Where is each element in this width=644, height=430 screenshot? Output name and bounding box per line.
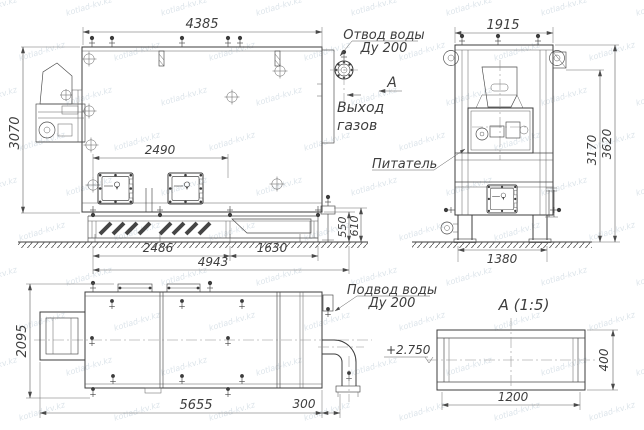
dim-2095: 2095	[15, 324, 30, 357]
callout-water-inlet: Подвод воды Ду 200	[335, 283, 437, 311]
hopper-front	[476, 67, 523, 108]
dimensions-side: 4385 3070 2490 2486 1630 4943 550 610	[8, 17, 367, 274]
callout-feeder: Питатель	[372, 149, 465, 172]
dim-1630: 1630	[257, 241, 288, 255]
feeder-box-top	[40, 312, 85, 360]
dim-400: 400	[597, 348, 611, 371]
dim-5655: 5655	[179, 398, 212, 413]
dim-3620: 3620	[600, 128, 614, 159]
side-door-1	[98, 173, 133, 204]
fuel-feeder-side	[36, 63, 85, 142]
drawing-page: { "watermark": { "text": "kotlad-kv.kz" …	[0, 0, 644, 430]
section-mark-letter: А	[386, 75, 397, 91]
callout-gas-exit: Выход газов	[337, 100, 384, 134]
drain-valve	[321, 195, 335, 242]
engineering-drawing: А	[0, 0, 644, 430]
label-gas-exit-2: газов	[337, 118, 377, 134]
dimensions-top: 2095 5655 300	[15, 284, 340, 418]
feeder-window	[468, 108, 533, 153]
label-elevation: +2.750	[386, 343, 431, 357]
top-view	[34, 281, 372, 402]
lifting-lugs	[159, 51, 280, 66]
dim-1200: 1200	[498, 390, 529, 404]
callout-water-outlet: Отвод воды Ду 200	[340, 28, 425, 56]
dim-1915: 1915	[486, 18, 519, 33]
dimensions-section-a: 1200 400	[442, 330, 618, 410]
water-inlet-elbow	[318, 340, 364, 402]
label-gas-exit-1: Выход	[337, 100, 384, 116]
front-view	[441, 34, 566, 243]
label-water-inlet-size: Ду 200	[368, 296, 416, 311]
dim-610: 610	[348, 216, 361, 237]
section-a-title: А (1:5)	[498, 296, 550, 314]
dim-4943: 4943	[198, 255, 229, 269]
base-frame	[88, 216, 318, 242]
dim-300: 300	[293, 397, 316, 411]
section-cut-mark: А	[347, 75, 402, 95]
front-door	[487, 185, 517, 213]
dim-3070: 3070	[8, 116, 23, 149]
side-view	[36, 36, 335, 242]
dim-1380: 1380	[487, 252, 518, 266]
dim-3170: 3170	[585, 134, 599, 165]
front-left-flange	[441, 222, 458, 234]
dimensions-front: 1915 3170 3620 1380	[455, 18, 620, 266]
front-right-pipes	[545, 188, 558, 217]
label-water-outlet-size: Ду 200	[360, 41, 408, 56]
side-door-2	[168, 173, 203, 204]
dim-2486: 2486	[143, 241, 174, 255]
dim-2490: 2490	[145, 143, 176, 157]
ground-line	[18, 242, 592, 248]
elevation-mark: +2.750	[384, 343, 433, 363]
dim-4385: 4385	[185, 17, 218, 32]
